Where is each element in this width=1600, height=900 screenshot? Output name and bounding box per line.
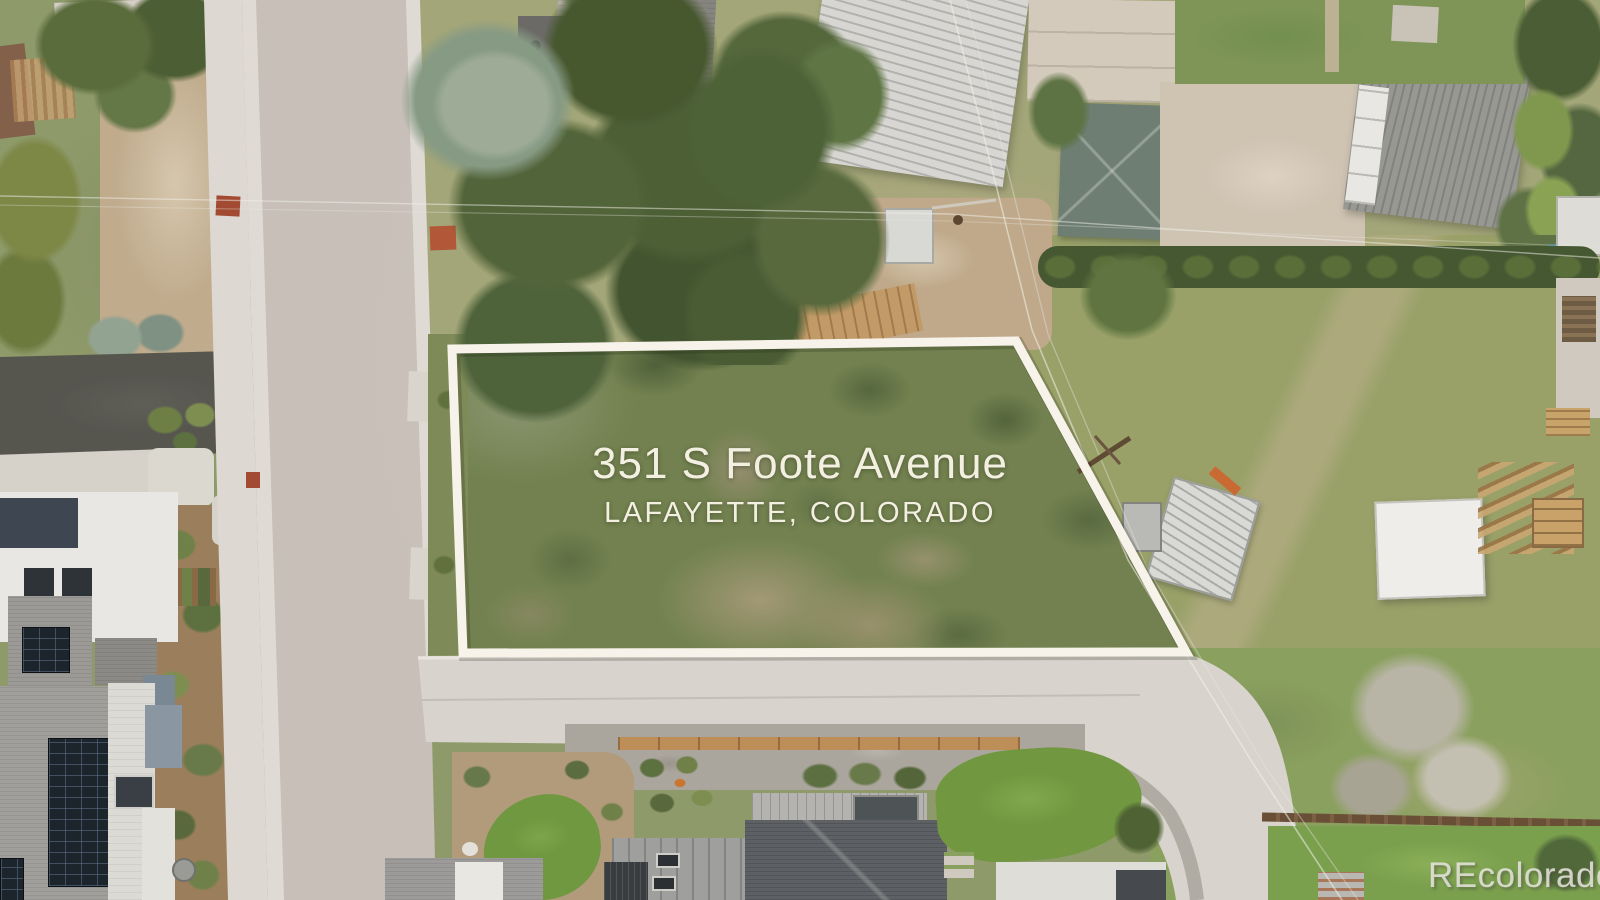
- house-b-lower-wall: [142, 808, 175, 900]
- lawn-divider-path: [1325, 0, 1339, 72]
- crosswalk-patch-1: [215, 195, 240, 216]
- house-a-dark-panel: [0, 498, 78, 548]
- tree-canopy-right: [685, 35, 900, 365]
- ac-unit: [172, 858, 196, 882]
- concrete-patio: [1160, 82, 1365, 254]
- white-shed: [1374, 498, 1485, 600]
- paver-path: [944, 852, 974, 878]
- house-b-windows: [114, 775, 154, 809]
- wood-bench: [1546, 408, 1590, 436]
- rust-shrub: [1186, 678, 1226, 712]
- corner-rock: [462, 842, 478, 856]
- dead-brush: [1322, 628, 1518, 833]
- house-b-solar-small: [0, 858, 24, 900]
- house-a-roof-vents: [24, 568, 100, 596]
- street-utility-patch: [515, 700, 541, 722]
- skylight-2: [652, 876, 676, 891]
- address-line: 351 S Foote Avenue: [592, 440, 1008, 488]
- sidewalk-patch-red: [246, 472, 260, 488]
- lawn-paver: [1391, 5, 1439, 43]
- south-house-main-roof: [745, 820, 947, 900]
- small-gray-shed: [1122, 502, 1162, 552]
- aerial-photo: 351 S Foote Avenue LAFAYETTE, COLORADO R…: [0, 0, 1600, 900]
- south-house-right-dark: [1116, 870, 1166, 900]
- blue-gray-wall-2: [145, 705, 182, 768]
- top-lawn: [1175, 0, 1525, 84]
- location-line: LAFAYETTE, COLORADO: [592, 497, 1008, 530]
- house-a-solar-array: [22, 627, 70, 673]
- garden-planters: [176, 568, 216, 606]
- listing-title-block: 351 S Foote Avenue LAFAYETTE, COLORADO: [592, 440, 1008, 530]
- lawn-bush: [1114, 802, 1164, 854]
- bushes-row-south: [795, 756, 945, 798]
- wood-dresser: [1532, 498, 1584, 548]
- bottom-right-shed: [1318, 872, 1364, 900]
- tree-by-driveway: [1028, 72, 1090, 152]
- watermark: REcolorado: [1428, 856, 1600, 896]
- tree-below-hedge: [1080, 252, 1176, 340]
- skylight-1: [656, 853, 680, 868]
- house-b-solar-array: [48, 738, 114, 887]
- veggie-garden: [632, 753, 732, 821]
- south-house-c-siding: [604, 862, 648, 900]
- south-house-left-wall: [455, 862, 503, 900]
- lumber-on-path: [1562, 296, 1596, 342]
- wood-retaining-wall: [618, 737, 1020, 750]
